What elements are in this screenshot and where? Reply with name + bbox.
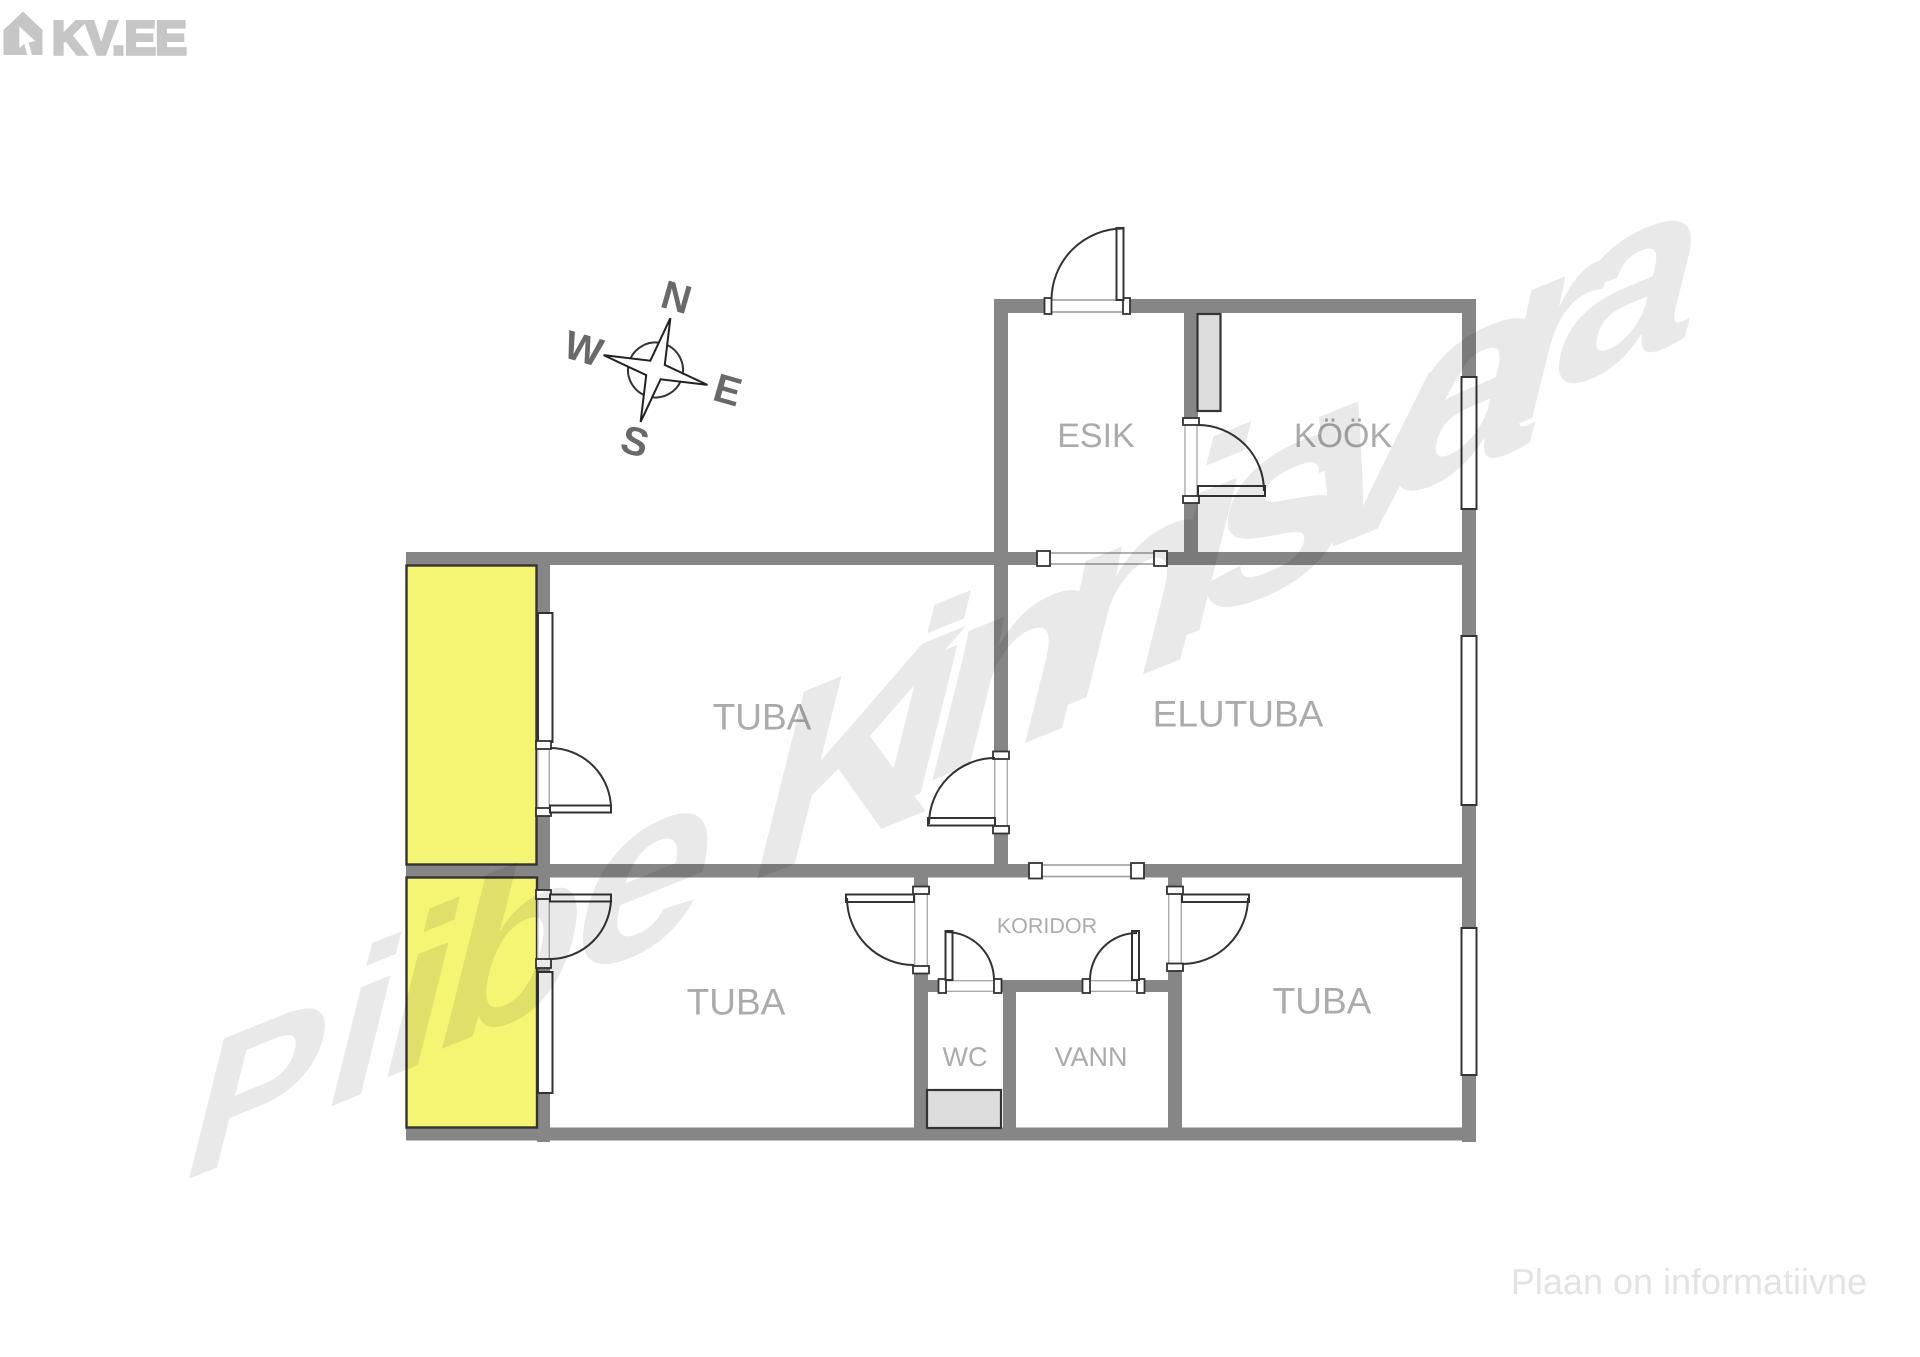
svg-text:TUBA: TUBA <box>687 982 786 1023</box>
svg-text:TUBA: TUBA <box>1273 981 1372 1022</box>
svg-text:Plaan on informatiivne: Plaan on informatiivne <box>1511 1261 1867 1302</box>
svg-text:VANN: VANN <box>1054 1042 1127 1072</box>
svg-text:KV.EE: KV.EE <box>52 11 186 64</box>
svg-text:KORIDOR: KORIDOR <box>997 914 1097 938</box>
svg-text:WC: WC <box>943 1042 988 1072</box>
